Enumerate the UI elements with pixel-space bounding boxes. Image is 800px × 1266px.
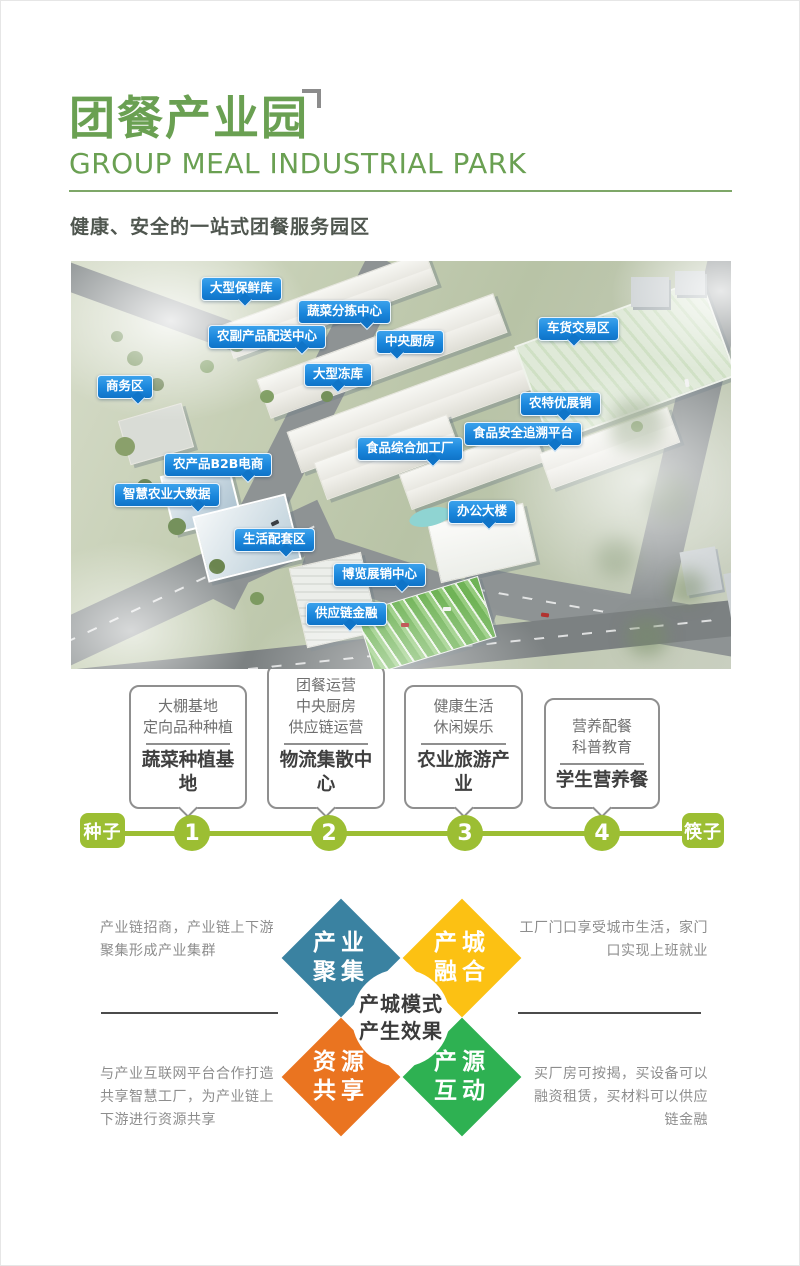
brochure-page: 团餐产业园 GROUP MEAL INDUSTRIAL PARK 健康、安全的一… [0, 0, 800, 1266]
timeline-step-bubble: 团餐运营 中央厨房 供应链运营 物流集散中心 [267, 664, 385, 809]
map-label-agri-b2b-ecommerce: 农产品B2B电商 [164, 453, 272, 477]
corner-bracket-icon [302, 89, 321, 108]
note-line: 下游进行资源共享 [100, 1109, 274, 1132]
map-label-large-fresh-storage: 大型保鲜库 [201, 277, 282, 301]
bubble-result: 学生营养餐 [550, 769, 654, 793]
bubble-divider [560, 763, 643, 765]
timeline-step-number: 4 [584, 815, 620, 851]
note-finance-options: 买厂房可按揭，买设备可以 融资租赁，买材料可以供应 链金融 [534, 1063, 708, 1132]
bubble-line: 健康生活 [410, 696, 517, 717]
page-title: 团餐产业园 [69, 95, 309, 141]
quadrant-text: 产业 [313, 930, 369, 956]
map-car [443, 607, 451, 611]
left-note-divider [101, 1012, 278, 1014]
note-industry-cluster: 产业链招商，产业链上下游 聚集形成产业集群 [100, 917, 274, 963]
map-gray-block [675, 271, 705, 295]
map-gray-block [631, 277, 669, 307]
quadrant-text: 资源 [313, 1049, 369, 1075]
map-gray-block [679, 546, 722, 596]
timeline-step-bubble: 大棚基地 定向品种种植 蔬菜种植基地 [129, 685, 247, 809]
timeline-step-number: 2 [311, 815, 347, 851]
map-label-agri-product-distribution-center: 农副产品配送中心 [208, 325, 326, 349]
quadrant-text: 互动 [434, 1078, 490, 1104]
note-line: 融资租赁，买材料可以供应 [534, 1086, 708, 1109]
bubble-line: 定向品种种植 [135, 717, 241, 738]
bubble-result: 物流集散中心 [273, 749, 379, 797]
bubble-line: 团餐运营 [273, 675, 379, 696]
bubble-line: 供应链运营 [273, 717, 379, 738]
timeline-step-number: 3 [447, 815, 483, 851]
map-label-food-safety-trace-platform: 食品安全追溯平台 [464, 422, 582, 446]
map-label-central-kitchen: 中央厨房 [376, 330, 444, 354]
map-label-expo-sales-center: 博览展销中心 [333, 563, 426, 587]
map-trees [111, 331, 123, 342]
bubble-line: 休闲娱乐 [410, 717, 517, 738]
page-title-english: GROUP MEAL INDUSTRIAL PARK [69, 150, 527, 178]
note-line: 聚集形成产业集群 [100, 940, 274, 963]
quadrant-text: 产城 [434, 930, 490, 956]
center-circle-text: 产生效果 [359, 1018, 443, 1045]
bubble-line: 科普教育 [550, 737, 654, 758]
bubble-line: 大棚基地 [135, 696, 241, 717]
map-label-business-district: 商务区 [97, 375, 153, 399]
map-label-living-support-zone: 生活配套区 [234, 528, 315, 552]
timeline-start-tag: 种子 [80, 813, 125, 848]
bubble-result: 农业旅游产业 [410, 749, 517, 797]
bubble-result: 蔬菜种植基地 [135, 749, 241, 797]
quadrant-text: 共享 [313, 1078, 369, 1104]
note-city-life: 工厂门口享受城市生活，家门 口实现上班就业 [520, 917, 709, 963]
effects-center-circle: 产城模式 产生效果 [352, 969, 450, 1067]
timeline-step-number: 1 [174, 815, 210, 851]
note-line: 共享智慧工厂，为产业链上 [100, 1086, 274, 1109]
quadrant-text: 融合 [434, 959, 490, 985]
note-line: 与产业互联网平台合作打造 [100, 1063, 274, 1086]
map-label-smart-agri-bigdata: 智慧农业大数据 [114, 483, 220, 507]
map-trees [321, 391, 333, 402]
quadrant-text: 产源 [434, 1049, 490, 1075]
timeline-step-bubble: 营养配餐 科普教育 学生营养餐 [544, 698, 660, 809]
park-aerial-render: 大型保鲜库 蔬菜分拣中心 农副产品配送中心 中央厨房 车货交易区 大型冻库 商务… [71, 261, 731, 669]
timeline-end-tag: 筷子 [682, 813, 724, 848]
map-label-truck-cargo-trading-zone: 车货交易区 [538, 317, 619, 341]
bubble-line: 中央厨房 [273, 696, 379, 717]
note-line: 工厂门口享受城市生活，家门 [520, 917, 709, 940]
note-line: 产业链招商，产业链上下游 [100, 917, 274, 940]
map-label-office-building: 办公大楼 [448, 500, 516, 524]
industry-chain-timeline: 种子 筷子 大棚基地 定向品种种植 蔬菜种植基地 团餐运营 中央厨房 供应链运营… [1, 701, 800, 866]
map-label-food-processing-plant: 食品综合加工厂 [357, 437, 463, 461]
note-line: 口实现上班就业 [520, 940, 709, 963]
right-note-divider [518, 1012, 701, 1014]
center-circle-text: 产城模式 [359, 991, 443, 1018]
map-car [401, 623, 409, 627]
map-label-agri-specialty-expo: 农特优展销 [520, 392, 601, 416]
note-line: 买厂房可按揭，买设备可以 [534, 1063, 708, 1086]
quadrant-text: 聚集 [313, 959, 369, 985]
bubble-divider [421, 743, 507, 745]
map-label-supply-chain-finance: 供应链金融 [306, 602, 387, 626]
note-line: 链金融 [534, 1109, 708, 1132]
page-subtitle: 健康、安全的一站式团餐服务园区 [70, 212, 370, 239]
bubble-divider [284, 743, 369, 745]
city-industry-effects-diagram: 产业聚集 产城融合 资源共享 产源互动 产城模式 产生效果 产业链招商，产业链上… [1, 891, 800, 1171]
map-trees [631, 421, 643, 432]
bubble-divider [146, 743, 231, 745]
bubble-line: 营养配餐 [550, 716, 654, 737]
timeline-step-bubble: 健康生活 休闲娱乐 农业旅游产业 [404, 685, 523, 809]
map-label-large-freezer: 大型冻库 [304, 363, 372, 387]
note-resource-sharing: 与产业互联网平台合作打造 共享智慧工厂，为产业链上 下游进行资源共享 [100, 1063, 274, 1132]
header-divider [69, 190, 732, 192]
map-label-vegetable-sorting-center: 蔬菜分拣中心 [298, 300, 391, 324]
